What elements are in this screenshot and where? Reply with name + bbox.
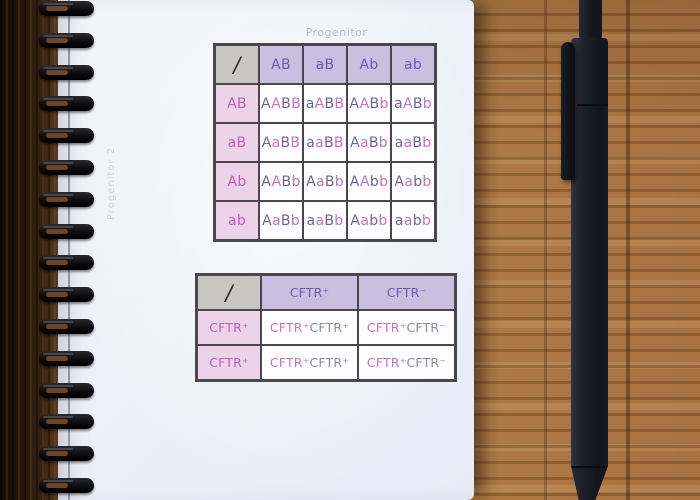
allele-segment: a: [404, 213, 413, 229]
punnett-col-header: CFTR⁻: [358, 275, 456, 311]
allele-segment: b: [413, 213, 422, 229]
allele-segment: B: [334, 135, 344, 151]
allele-segment: B: [370, 96, 380, 112]
punnett-cell: AABb: [347, 84, 391, 123]
punnett-corner-cell: /: [215, 45, 260, 85]
allele-segment: B: [325, 174, 335, 190]
punnett-cell: aaBb: [303, 201, 347, 241]
allele-segment: B: [291, 96, 301, 112]
punnett-corner-cell: /: [197, 275, 262, 311]
allele-segment: b: [423, 96, 432, 112]
punnett-col-header: CFTR⁺: [261, 275, 358, 311]
allele-segment: a: [360, 213, 369, 229]
allele-segment: b: [369, 213, 378, 229]
allele-segment: B: [282, 174, 292, 190]
desk-scene: Progenitor Progenitor 2 /ABaBAbabABAABBa…: [0, 0, 700, 500]
allele-segment: A: [403, 96, 413, 112]
allele-segment: b: [378, 213, 387, 229]
allele-segment: b: [379, 96, 388, 112]
punnett-cell: CFTR⁺CFTR⁺: [261, 310, 358, 345]
allele-segment: B: [334, 96, 344, 112]
allele-segment: b: [370, 174, 379, 190]
allele-segment: CFTR⁺: [270, 320, 310, 335]
punnett-large-table: /ABaBAbabABAABBaABBAABbaABbaBAaBBaaBBAaB…: [213, 43, 437, 242]
allele-segment: B: [281, 213, 291, 229]
allele-segment: B: [413, 96, 423, 112]
allele-segment: b: [379, 174, 388, 190]
punnett-cell: CFTR⁺CFTR⁻: [358, 310, 456, 345]
punnett-col-header: Ab: [347, 45, 391, 85]
punnett-row-header: aB: [215, 123, 260, 162]
punnett-cell: aabb: [391, 201, 436, 241]
allele-segment: A: [350, 135, 360, 151]
allele-segment: b: [291, 213, 300, 229]
allele-segment: a: [315, 135, 324, 151]
allele-segment: A: [261, 174, 271, 190]
punnett-cell: AaBb: [347, 123, 391, 162]
punnett-row-header: CFTR⁺: [197, 310, 262, 345]
allele-segment: b: [379, 135, 388, 151]
allele-segment: A: [271, 96, 281, 112]
punnett-cell: aaBB: [303, 123, 347, 162]
allele-segment: A: [350, 174, 360, 190]
punnett-cell: AaBb: [259, 201, 303, 241]
punnett-cell: Aabb: [347, 201, 391, 241]
punnett-row-header: ab: [215, 201, 260, 241]
allele-segment: CFTR⁻: [407, 355, 447, 370]
punnett-cell: AaBB: [259, 123, 303, 162]
punnett-small-table: /CFTR⁺CFTR⁻CFTR⁺CFTR⁺CFTR⁺CFTR⁺CFTR⁻CFTR…: [195, 273, 457, 382]
allele-segment: a: [306, 135, 315, 151]
punnett-cell: Aabb: [391, 162, 436, 201]
allele-segment: B: [290, 135, 300, 151]
desk-wood-left: [0, 0, 66, 500]
punnett-cell: CFTR⁺CFTR⁺: [261, 345, 358, 381]
allele-segment: B: [324, 96, 334, 112]
pen-clip: [561, 42, 575, 180]
punnett-cell: AABb: [259, 162, 303, 201]
punnett-square-dihybrid: /ABaBAbabABAABBaABBAABbaABbaBAaBBaaBBAaB…: [213, 43, 437, 242]
punnett-col-header: AB: [259, 45, 303, 85]
allele-segment: A: [272, 174, 282, 190]
allele-segment: CFTR⁺: [367, 320, 407, 335]
notebook-page-edge-line: [68, 0, 70, 500]
allele-segment: B: [324, 135, 334, 151]
punnett-cell: AaBb: [303, 162, 347, 201]
allele-segment: A: [315, 96, 325, 112]
punnett-cell: AABB: [259, 84, 303, 123]
punnett-row-header: Ab: [215, 162, 260, 201]
allele-segment: A: [261, 96, 271, 112]
wood-plank-seam: [544, 0, 547, 500]
allele-segment: a: [404, 174, 413, 190]
allele-segment: B: [369, 135, 379, 151]
punnett-square-cftr: /CFTR⁺CFTR⁻CFTR⁺CFTR⁺CFTR⁺CFTR⁺CFTR⁻CFTR…: [195, 273, 457, 382]
allele-segment: b: [291, 174, 300, 190]
pen-tip: [571, 466, 608, 500]
pen-clicker-button: [579, 0, 602, 40]
allele-segment: b: [422, 213, 431, 229]
punnett-cell: aABB: [303, 84, 347, 123]
allele-segment: CFTR⁻: [407, 320, 447, 335]
punnett-col-header: aB: [303, 45, 347, 85]
allele-segment: A: [394, 174, 404, 190]
allele-segment: b: [422, 135, 431, 151]
allele-segment: A: [360, 174, 370, 190]
allele-segment: a: [360, 135, 369, 151]
allele-segment: b: [334, 213, 343, 229]
punnett-row-header: AB: [215, 84, 260, 123]
allele-segment: B: [280, 135, 290, 151]
allele-segment: A: [349, 96, 359, 112]
punnett-col-header: ab: [391, 45, 436, 85]
allele-segment: a: [403, 135, 412, 151]
progenitor-top-label: Progenitor: [223, 26, 450, 39]
punnett-row-header: CFTR⁺: [197, 345, 262, 381]
allele-segment: b: [335, 174, 344, 190]
allele-segment: a: [306, 96, 315, 112]
allele-segment: a: [395, 213, 404, 229]
allele-segment: CFTR⁺: [270, 355, 310, 370]
allele-segment: B: [412, 135, 422, 151]
pen-barrel: [571, 106, 608, 466]
allele-segment: A: [360, 96, 370, 112]
progenitor-side-label: Progenitor 2: [106, 118, 117, 248]
allele-segment: b: [413, 174, 422, 190]
allele-segment: B: [281, 96, 291, 112]
punnett-cell: aABb: [391, 84, 436, 123]
allele-segment: b: [422, 174, 431, 190]
allele-segment: A: [262, 135, 272, 151]
punnett-cell: CFTR⁺CFTR⁻: [358, 345, 456, 381]
punnett-cell: aaBb: [391, 123, 436, 162]
punnett-cell: AAbb: [347, 162, 391, 201]
allele-segment: A: [350, 213, 360, 229]
allele-segment: CFTR⁺: [367, 355, 407, 370]
allele-segment: a: [272, 213, 281, 229]
allele-segment: A: [262, 213, 272, 229]
allele-segment: a: [315, 213, 324, 229]
allele-segment: a: [316, 174, 325, 190]
allele-segment: a: [394, 96, 403, 112]
allele-segment: B: [324, 213, 334, 229]
allele-segment: A: [306, 174, 316, 190]
allele-segment: CFTR⁺: [310, 355, 350, 370]
notebook-page: Progenitor Progenitor 2 /ABaBAbabABAABBa…: [58, 0, 474, 500]
wood-plank-seam: [626, 0, 630, 500]
allele-segment: CFTR⁺: [310, 320, 350, 335]
